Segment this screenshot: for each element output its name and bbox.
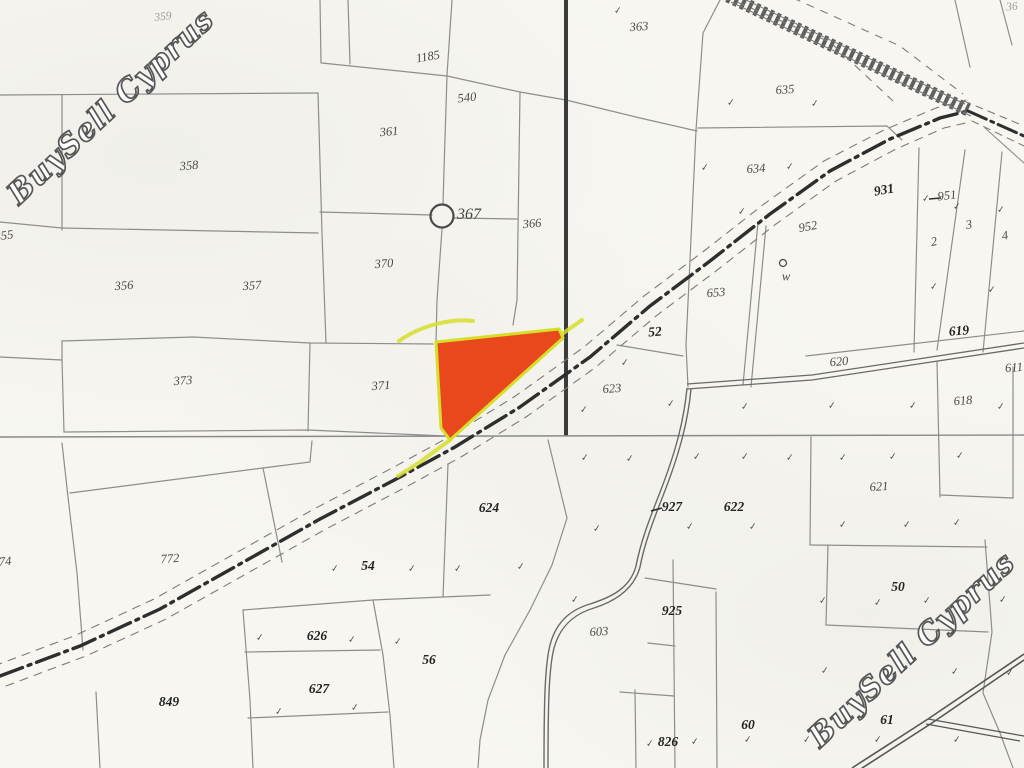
hatched-road: [725, 0, 971, 116]
curve-road: [544, 388, 691, 768]
cadastral-map-svg: [0, 0, 1024, 768]
highlight-outline-extension-bottom: [398, 440, 450, 476]
annotation-dashes: [651, 198, 941, 511]
cadastral-map: ✓✓✓✓✓✓✓✓✓✓✓✓✓✓✓✓✓✓✓✓✓✓✓✓✓✓✓✓✓✓✓✓✓✓✓✓✓✓✓✓…: [0, 0, 1024, 768]
highlighted-parcel-shape: [436, 329, 563, 440]
east-road: [964, 101, 1024, 163]
well-icon: [780, 260, 787, 267]
section-line-horizontal: [0, 435, 1024, 437]
parcel-367-circle: [431, 205, 454, 228]
